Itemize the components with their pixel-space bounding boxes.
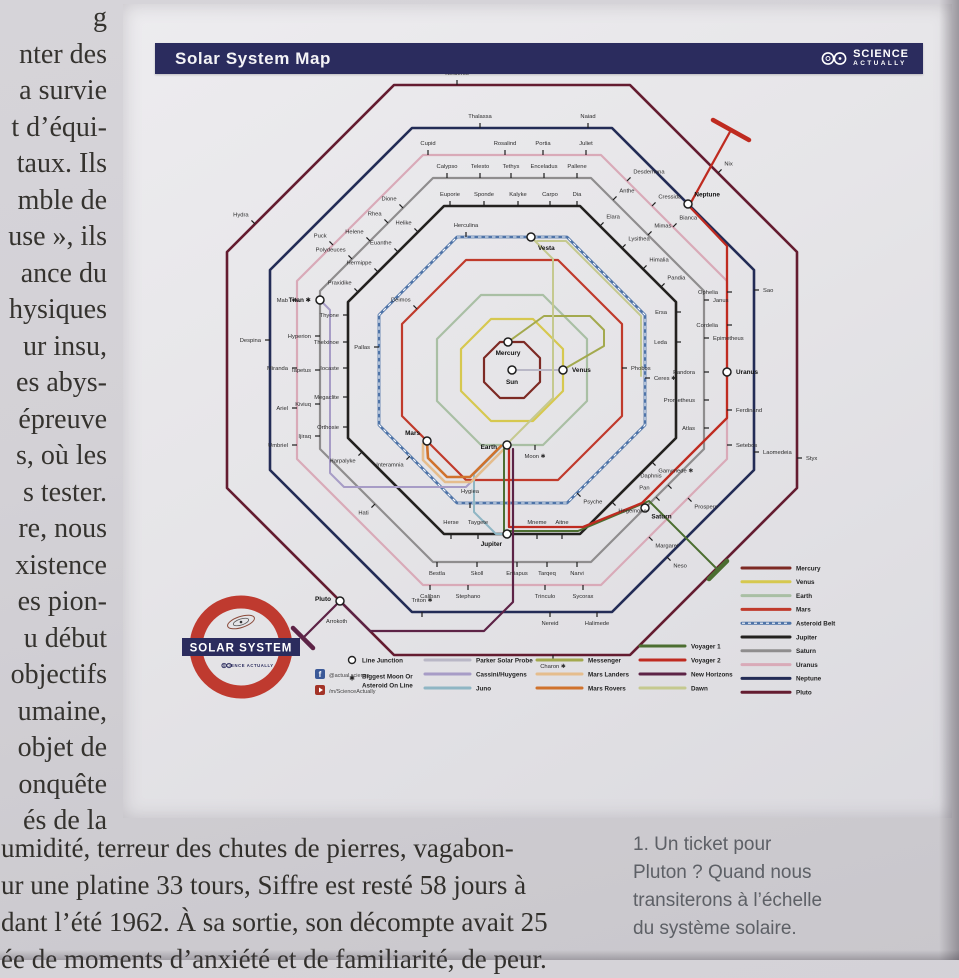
station-label-ferdinand: Ferdinand (736, 408, 762, 414)
station-tick (649, 537, 653, 541)
junction-sun (508, 366, 516, 374)
station-label-praxidike: Praxidike (328, 280, 352, 286)
legend-biggest-label: Biggest Moon Or (362, 674, 413, 681)
station-label-orthosie: Orthosie (317, 425, 339, 431)
station-tick (251, 220, 255, 224)
station-tick (652, 202, 656, 206)
station-label-interamnia: Interamnia (376, 463, 404, 469)
station-label-pluto: Pluto (315, 596, 331, 603)
station-label-aitne: Aitne (555, 520, 568, 526)
legend-label-parker-solar-probe: Parker Solar Probe (476, 657, 533, 664)
station-label-hygiea: Hygiea (461, 489, 480, 495)
station-label-hydra: Hydra (233, 212, 249, 218)
station-label-naiad: Naiad (580, 114, 595, 120)
station-label-earth: Earth (481, 444, 497, 451)
legend-label-cassini-huygens: Cassini/Huygens (476, 671, 527, 678)
station-label-trinculo: Trinculo (535, 594, 555, 600)
station-label-telesto: Telesto (471, 164, 489, 170)
station-label-mimas: Mimas (654, 223, 671, 229)
station-label-polydeuces: Polydeuces (316, 247, 346, 253)
station-label-tethys: Tethys (503, 164, 520, 170)
legend-label-mars: Mars (796, 607, 811, 614)
science-actually-brand: SCIENCE ACTUALLY (820, 49, 923, 68)
station-tick (577, 493, 581, 497)
station-label-juliet: Juliet (579, 141, 593, 147)
station-label-iocaste: Iocaste (320, 366, 339, 372)
station-tick (613, 196, 617, 200)
station-label-rhea: Rhea (368, 211, 383, 217)
station-label-helene: Helene (345, 229, 363, 235)
station-label-calypso: Calypso (437, 164, 458, 170)
station-tick (622, 244, 626, 248)
station-label-jupiter: Jupiter (481, 541, 503, 548)
station-label-euanthe: Euanthe (370, 240, 392, 246)
legend-label-messenger: Messenger (588, 657, 621, 664)
poster-header-bar: Solar System Map SCIENCE ACTUALLY (155, 43, 923, 74)
legend-label-neptune: Neptune (796, 676, 822, 683)
station-tick (348, 255, 352, 259)
legend-biggest-icon: ✱ (349, 675, 355, 683)
station-label-mab: Mab (277, 298, 288, 304)
station-label-nix: Nix (724, 161, 732, 167)
station-label-mercury: Mercury (496, 350, 521, 357)
station-label-dione: Dione (381, 196, 396, 202)
station-label-sao: Sao (763, 288, 773, 294)
station-label-herculina: Herculina (454, 223, 479, 229)
station-tick (329, 241, 333, 245)
legend-label-uranus: Uranus (796, 662, 818, 669)
station-label-sun: Sun (506, 379, 518, 386)
legend-junction-label: Line Junction (362, 658, 403, 665)
station-tick (661, 283, 665, 287)
legend-label-juno: Juno (476, 685, 491, 692)
craft-dawn (510, 240, 553, 441)
map-label-arrokoth: Arrokoth (326, 619, 347, 625)
station-label-himalia: Himalia (649, 257, 669, 263)
station-tick (394, 248, 398, 252)
station-label-vesta: Vesta (538, 245, 555, 252)
station-tick (358, 452, 362, 456)
station-label-saturn: Saturn (651, 514, 671, 521)
junction-mercury (504, 338, 512, 346)
junction-vesta (527, 233, 535, 241)
station-tick (648, 231, 652, 235)
station-tick (667, 557, 671, 561)
station-tick (627, 177, 631, 181)
station-label-bianca: Bianca (679, 215, 698, 221)
station-tick (668, 485, 672, 489)
station-label-ersa: Ersa (655, 310, 668, 316)
station-label-pandia: Pandia (667, 275, 686, 281)
facebook-f-glyph: f (319, 670, 322, 679)
station-label-venus: Venus (572, 367, 591, 374)
station-label-carpo: Carpo (542, 192, 558, 198)
station-tick (354, 288, 358, 292)
station-label-pan: Pan (639, 485, 649, 491)
station-label-halimede: Halimede (585, 621, 610, 627)
station-label-pallas: Pallas (354, 345, 370, 351)
station-label-cupid: Cupid (420, 141, 435, 147)
station-label-skoll: Skoll (471, 571, 484, 577)
station-tick (688, 498, 692, 502)
station-label-cressida: Cressida (658, 194, 682, 200)
station-label-pallene: Pallene (567, 164, 586, 170)
station-label-erriapus: Erriapus (506, 571, 528, 577)
station-label-herse: Herse (443, 520, 458, 526)
station-label-margaret: Margaret (655, 544, 679, 550)
station-label-bestla: Bestla (429, 571, 446, 577)
junction-venus (559, 366, 567, 374)
station-label-cordelia: Cordelia (696, 323, 718, 329)
junction-mars (423, 437, 431, 445)
station-label-anthe: Anthe (619, 188, 634, 194)
station-label-deimos: Deimos (391, 297, 411, 303)
station-label-megaclite: Megaclite (314, 395, 339, 401)
station-label-uranus: Uranus (736, 369, 758, 376)
station-label-nereid: Nereid (541, 621, 558, 627)
station-tick (406, 456, 410, 460)
station-label-ganymede: Ganymede ✱ (658, 468, 693, 475)
station-label-leda: Leda (654, 340, 668, 346)
station-label-helike: Helike (396, 220, 412, 226)
poster-title: Solar System Map (155, 49, 331, 69)
terminus-bar (713, 120, 749, 140)
station-label-elara: Elara (606, 214, 620, 220)
station-label-miranda: Miranda (267, 366, 289, 372)
station-label-thalassa: Thalassa (468, 114, 492, 120)
station-label-epimetheus: Epimetheus (713, 336, 744, 342)
station-label-euporie: Euporie (440, 192, 460, 198)
junction-pluto (336, 597, 344, 605)
legend-label-pluto: Pluto (796, 690, 812, 697)
station-label-lysithea: Lysithea (628, 236, 650, 242)
legend-label-mars-landers: Mars Landers (588, 671, 629, 678)
station-tick (652, 462, 656, 466)
station-tick (643, 265, 647, 269)
station-label-hermippe: Hermippe (346, 260, 371, 266)
station-tick (656, 497, 660, 501)
roundel-label: SOLAR SYSTEM (190, 643, 293, 655)
station-label-narvi: Narvi (570, 571, 584, 577)
legend-label-saturn: Saturn (796, 648, 816, 655)
station-label-portia: Portia (535, 141, 551, 147)
station-label-ophelia: Ophelia (698, 290, 719, 296)
station-label-desdemona: Desdemona (633, 169, 665, 175)
station-label-sycorax: Sycorax (573, 594, 594, 600)
brand-science: SCIENCE (853, 49, 909, 60)
station-label-ceres: Ceres ✱ (654, 375, 676, 382)
station-label-charon: Charon ✱ (540, 663, 566, 670)
station-tick (413, 305, 417, 309)
station-label-stephano: Stephano (456, 594, 481, 600)
station-label-ijiraq: Ijiraq (298, 434, 311, 440)
legend-label-venus: Venus (796, 579, 815, 586)
station-label-setebos: Setebos (736, 443, 757, 449)
station-tick (371, 504, 375, 508)
galaxy-core-dot (240, 621, 243, 624)
station-label-umbriel: Umbriel (268, 443, 288, 449)
station-label-tarqeq: Tarqeq (538, 571, 556, 577)
legend-biggest-label: Asteroid On Line (362, 683, 413, 690)
glasses-galaxy-icon (820, 50, 848, 67)
station-label-prospero: Prospero (694, 505, 718, 511)
station-tick (399, 204, 403, 208)
station-tick (673, 223, 677, 227)
station-label-hati: Hati (358, 511, 368, 517)
station-label-iapetus: Iapetus (292, 368, 311, 374)
junction-titan (316, 296, 324, 304)
station-label-titan: Titan ✱ (289, 297, 311, 304)
station-label-kiviuq: Kiviuq (295, 402, 311, 408)
book-page-photo: { "header": { "title": "Solar System Map… (0, 0, 959, 960)
station-label-taygete: Taygete (468, 520, 488, 526)
station-label-mars: Mars (405, 430, 420, 437)
station-label-enceladus: Enceladus (530, 164, 557, 170)
station-label-dia: Dia (573, 192, 582, 198)
station-label-puck: Puck (314, 233, 327, 239)
station-label-rosalind: Rosalind (494, 141, 517, 147)
station-label-ariel: Ariel (276, 406, 288, 412)
station-label-pandora: Pandora (673, 370, 696, 376)
station-label-moon: Moon ✱ (525, 453, 546, 460)
station-label-hyperion: Hyperion (288, 334, 311, 340)
station-label-sponde: Sponde (474, 192, 494, 198)
station-label-janus: Janus (713, 298, 729, 304)
station-label-prometheus: Prometheus (664, 398, 695, 404)
legend-label-jupiter: Jupiter (796, 634, 818, 641)
station-label-kalyke: Kalyke (509, 192, 526, 198)
brand-text: SCIENCE ACTUALLY (853, 49, 909, 68)
junction-uranus (723, 368, 731, 376)
legend-label-mercury: Mercury (796, 565, 821, 572)
brand-actually: ACTUALLY (853, 61, 909, 68)
junction-neptune (684, 200, 692, 208)
legend-label-dawn: Dawn (691, 685, 708, 692)
legend-label-mars-rovers: Mars Rovers (588, 685, 626, 692)
legend-junction-icon (349, 657, 356, 664)
station-label-mneme: Mneme (527, 520, 546, 526)
station-label-psyche: Psyche (583, 500, 602, 506)
legend-label-earth: Earth (796, 593, 812, 600)
station-label-atlas: Atlas (682, 426, 695, 432)
station-tick (718, 169, 722, 173)
station-label-laomedeia: Laomedeia (763, 450, 792, 456)
station-tick (600, 222, 604, 226)
junction-earth (503, 441, 511, 449)
station-label-styx: Styx (806, 456, 817, 462)
station-label-neso: Neso (673, 564, 687, 570)
station-label-hegemone: Hegemone (618, 509, 646, 515)
social-handle: /m/ScienceActually (329, 689, 376, 695)
station-label-thyone: Thyone (320, 313, 339, 319)
station-tick (612, 502, 616, 506)
legend-label-voyager-2: Voyager 2 (691, 657, 721, 664)
junction-jupiter (503, 530, 511, 538)
station-tick (384, 219, 388, 223)
station-tick (374, 268, 378, 272)
legend-label-new-horizons: New Horizons (691, 671, 733, 678)
station-label-thelxinoe: Thelxinoe (314, 340, 339, 346)
legend-label-asteroid-belt: Asteroid Belt (796, 621, 836, 628)
station-label-harpalyke: Harpalyke (330, 459, 356, 465)
legend-label-voyager-1: Voyager 1 (691, 643, 721, 650)
solar-system-roundel: SOLAR SYSTEMSCIENCE ACTUALLYf@actual.sci… (182, 602, 376, 695)
station-label-phobos: Phobos (631, 366, 651, 372)
station-tick (414, 228, 418, 232)
station-label-despina: Despina (240, 338, 262, 344)
station-label-caliban: Caliban (420, 594, 440, 600)
station-label-neptune: Neptune (694, 191, 720, 198)
solar-system-map: KerberosNixStyxCharon ✱PlutoHydraThalass… (0, 0, 959, 960)
